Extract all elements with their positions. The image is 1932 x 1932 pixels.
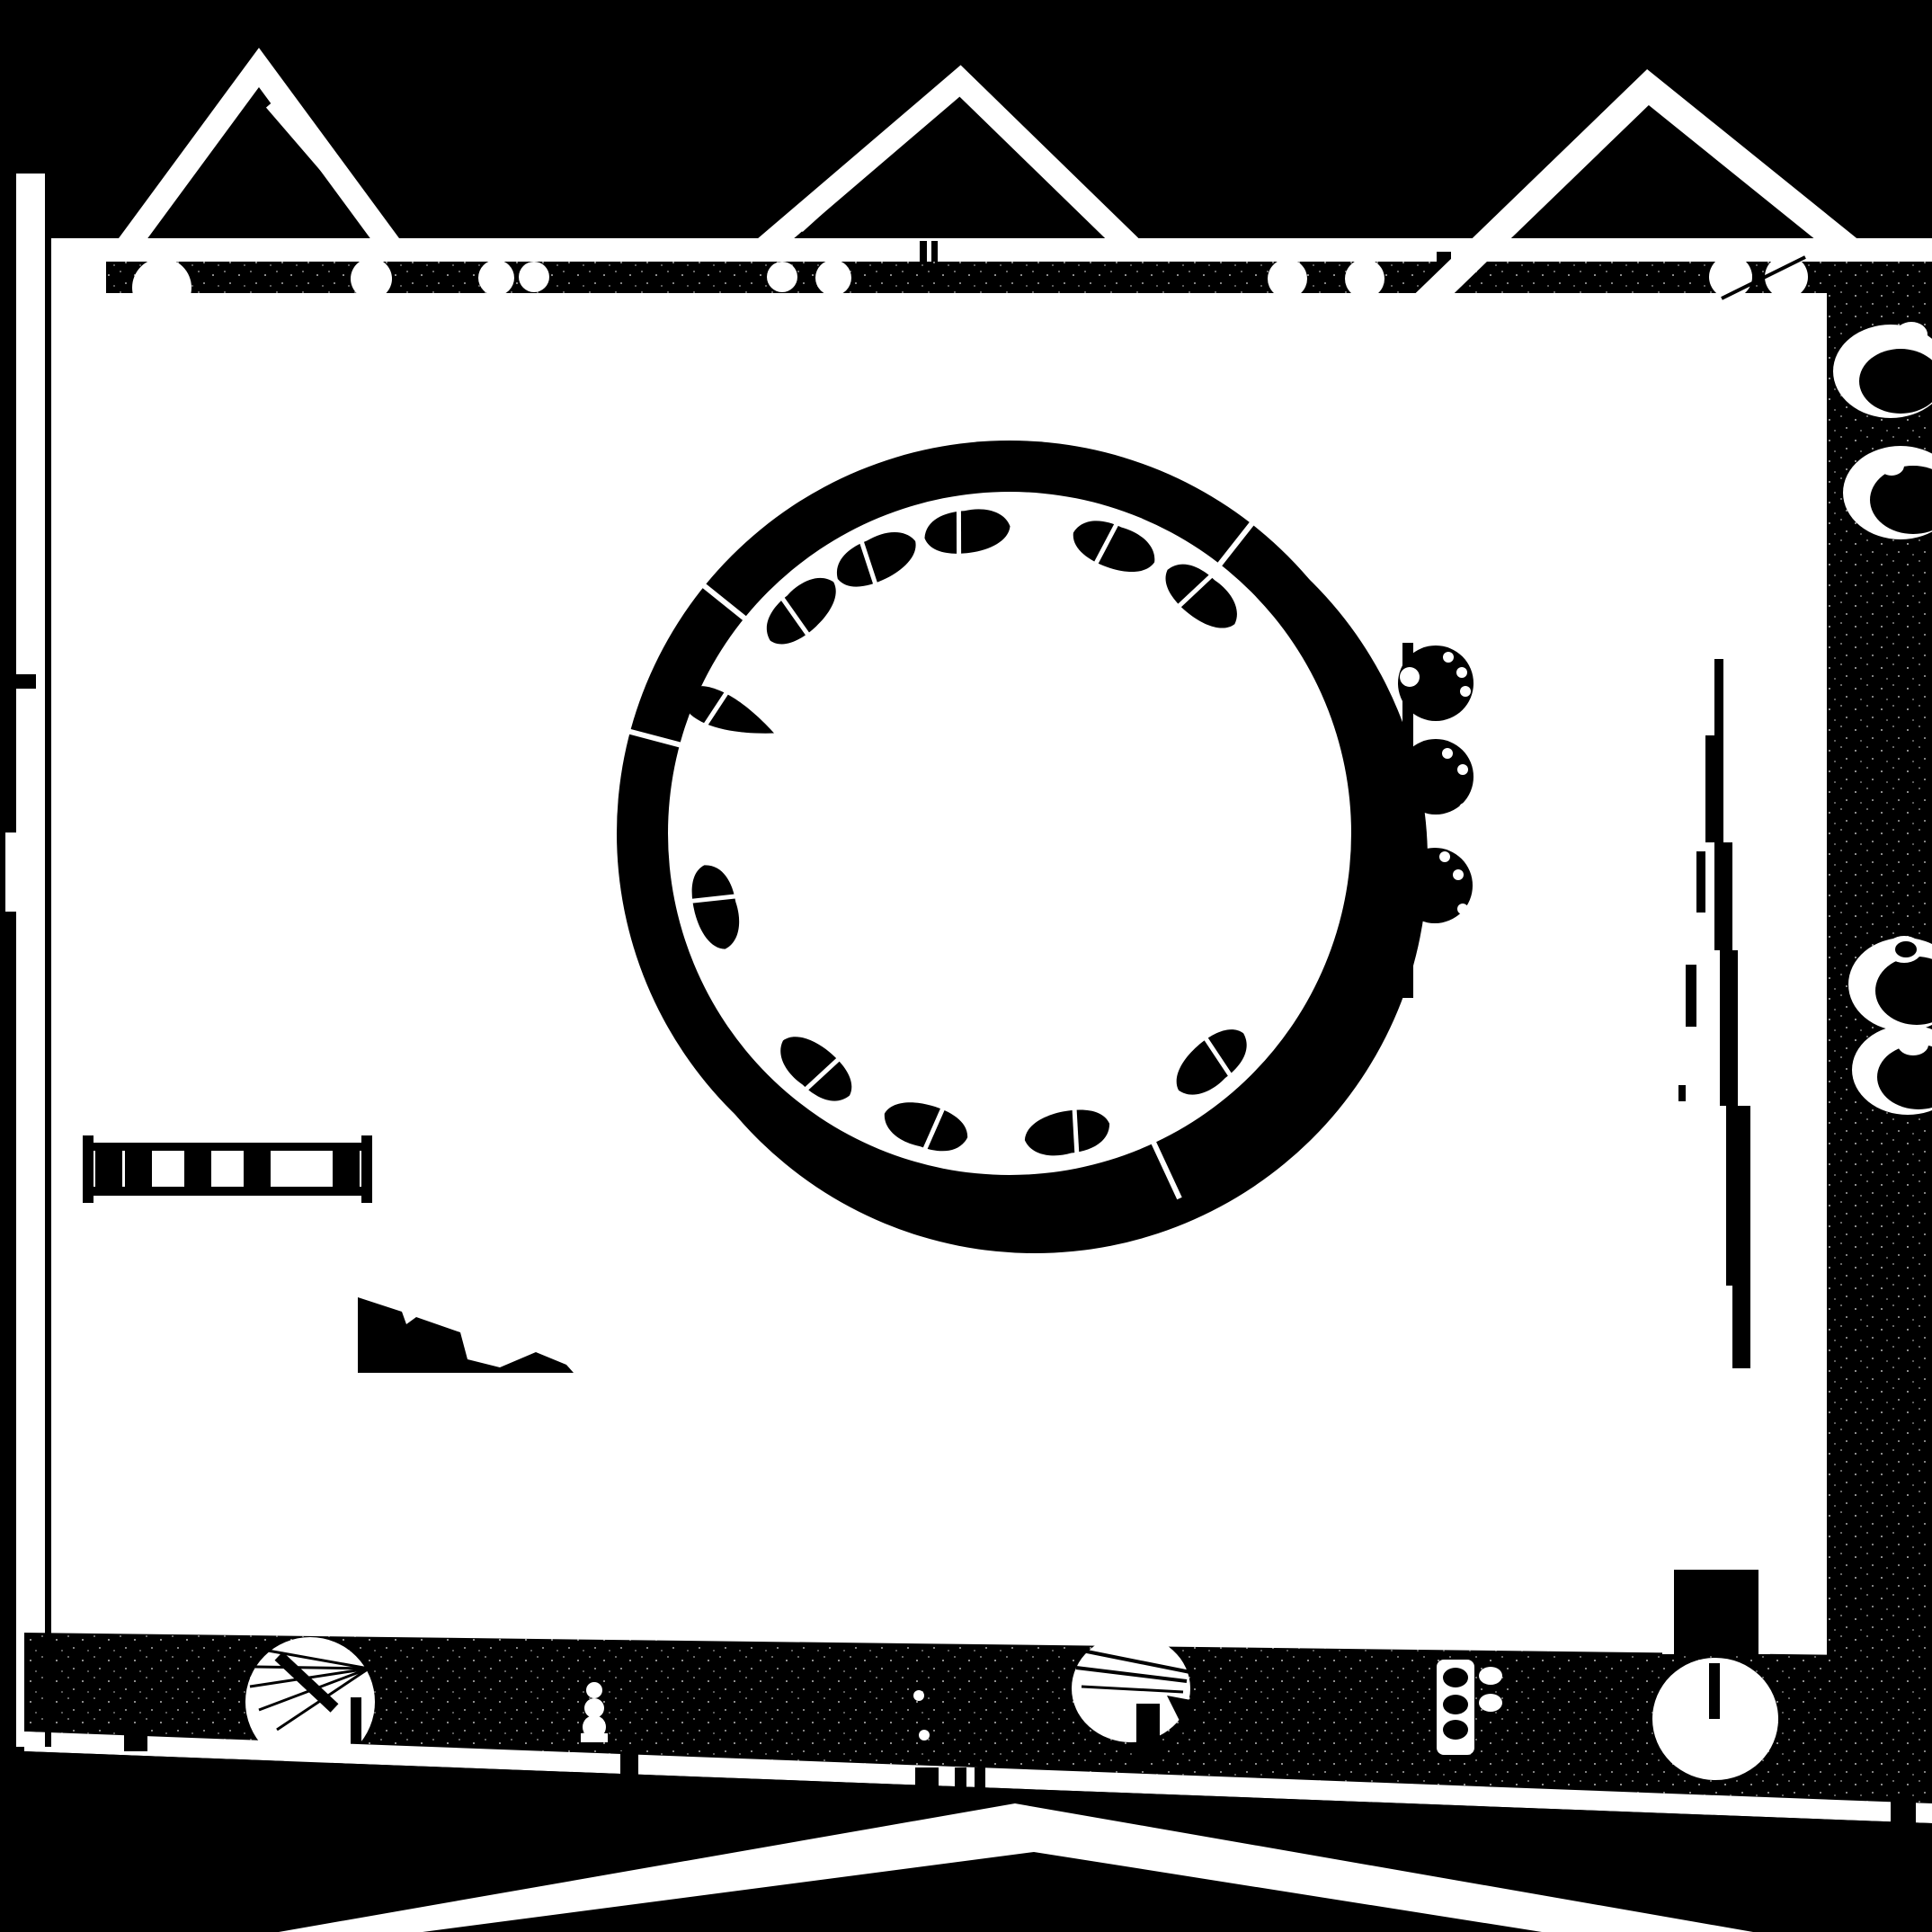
knob-highlight bbox=[1457, 764, 1468, 775]
frieze-column bbox=[132, 258, 191, 317]
walkway-post bbox=[124, 1724, 147, 1751]
statue-ornament bbox=[584, 1698, 604, 1718]
stair-column-step bbox=[1714, 842, 1732, 950]
left-wall-door-nook bbox=[5, 832, 45, 912]
frieze-column bbox=[1765, 255, 1808, 298]
frieze-column bbox=[1345, 259, 1384, 298]
ring-inner-floor bbox=[668, 492, 1351, 1175]
statue-base bbox=[581, 1733, 608, 1742]
oven-dome-slit bbox=[1709, 1663, 1720, 1719]
log-fence-cap-left bbox=[83, 1135, 93, 1203]
log-fence-cap-right bbox=[361, 1135, 372, 1203]
log-fence-log bbox=[333, 1150, 360, 1188]
knob-highlight bbox=[1457, 904, 1468, 914]
stair-column-step bbox=[1726, 1106, 1750, 1286]
log-fence-rail-bottom bbox=[86, 1187, 370, 1196]
side-table-chair bbox=[1895, 322, 1928, 347]
log-fence-log bbox=[244, 1150, 271, 1188]
statue-ornament bbox=[586, 1682, 602, 1698]
frieze-column bbox=[1268, 259, 1307, 298]
wall-dot bbox=[919, 1730, 930, 1741]
stair-column-step bbox=[1714, 659, 1723, 735]
screenshot-root bbox=[0, 0, 1932, 1932]
stair-dash bbox=[1696, 851, 1705, 913]
shelf-dot bbox=[1479, 1694, 1502, 1712]
side-table-chair bbox=[1879, 456, 1904, 476]
stair-dash bbox=[1678, 1085, 1686, 1101]
oven-box bbox=[1674, 1570, 1758, 1654]
shelf-dot bbox=[1479, 1667, 1502, 1685]
door-hinge-tick bbox=[920, 241, 927, 262]
frieze-column bbox=[767, 262, 797, 292]
frieze-column bbox=[351, 258, 392, 299]
knob-highlight bbox=[1456, 667, 1467, 678]
side-table-chair bbox=[1898, 1034, 1928, 1055]
left-wall-inner-line bbox=[45, 174, 51, 832]
stair-column-step bbox=[1720, 950, 1738, 1106]
left-wall-inner-line bbox=[45, 912, 51, 1747]
shelf-plate bbox=[1443, 1668, 1468, 1687]
knob-highlight bbox=[1459, 803, 1470, 814]
knob-highlight bbox=[1442, 748, 1453, 759]
frieze-column bbox=[815, 260, 851, 296]
round-knob bbox=[1398, 739, 1473, 815]
stair-column-step bbox=[1705, 735, 1723, 842]
frieze-column bbox=[478, 260, 514, 296]
door-hinge-tick bbox=[931, 241, 938, 262]
shelf-plate bbox=[1443, 1720, 1468, 1740]
knob-highlight bbox=[1453, 869, 1464, 880]
fan-line bbox=[255, 1667, 369, 1669]
shelf-plate bbox=[1443, 1695, 1468, 1714]
top-wall-band bbox=[49, 238, 1932, 263]
knob-highlight bbox=[1439, 851, 1450, 862]
battle-map-canvas bbox=[0, 0, 1932, 1932]
log-fence-log bbox=[125, 1150, 152, 1188]
map-layers bbox=[0, 0, 1932, 1932]
log-fence-log bbox=[184, 1150, 211, 1188]
left-wall-band bbox=[16, 174, 45, 1747]
knob-highlight bbox=[1443, 652, 1454, 663]
log-fence-rail-top bbox=[86, 1143, 370, 1151]
knob-notch bbox=[1400, 667, 1420, 687]
log-fence-log bbox=[95, 1150, 122, 1188]
frieze-column bbox=[1709, 255, 1752, 298]
fan-table-right-leg bbox=[1136, 1704, 1160, 1762]
wall-dot bbox=[913, 1690, 924, 1701]
stair-column-step bbox=[1732, 1286, 1750, 1368]
side-table-chair-seat bbox=[1895, 941, 1917, 957]
stair-dash bbox=[1686, 965, 1696, 1027]
knob-highlight bbox=[1460, 686, 1471, 697]
left-wall-tick bbox=[16, 674, 36, 689]
frieze-column bbox=[519, 262, 549, 292]
